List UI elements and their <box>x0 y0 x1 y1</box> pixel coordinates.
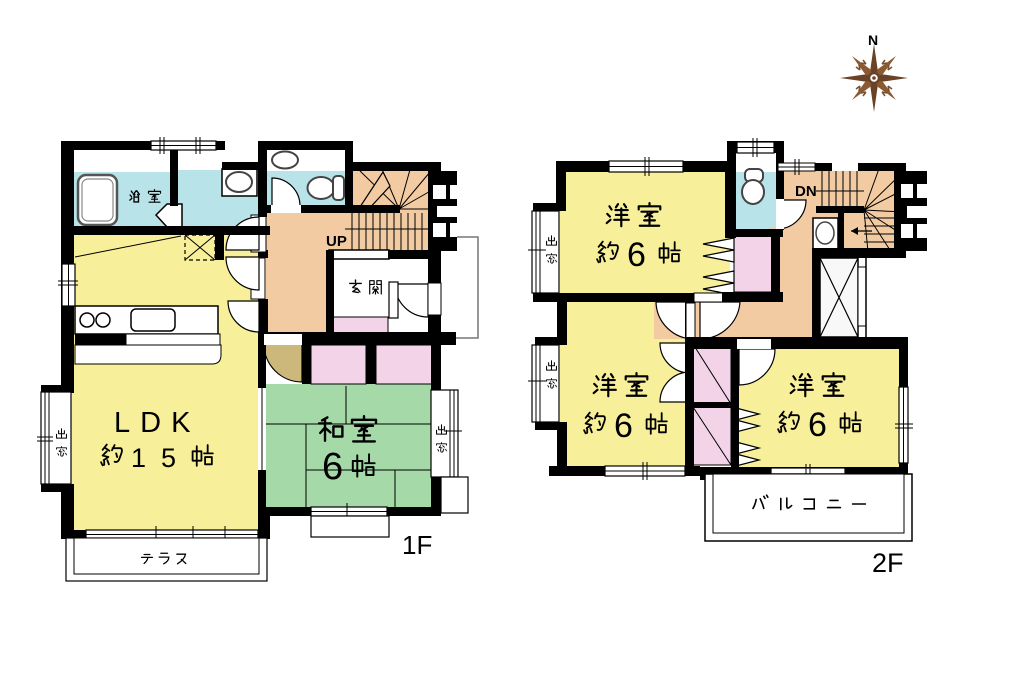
svg-text:2F: 2F <box>872 548 904 578</box>
svg-text:LDK: LDK <box>114 407 200 439</box>
svg-text:6: 6 <box>627 236 646 274</box>
svg-text:6: 6 <box>322 446 343 488</box>
svg-text:1F: 1F <box>402 530 432 560</box>
svg-text:UP: UP <box>326 233 347 250</box>
svg-text:6: 6 <box>614 407 633 445</box>
svg-text:DN: DN <box>795 183 817 200</box>
svg-text:6: 6 <box>808 406 827 444</box>
svg-text:N: N <box>868 32 878 48</box>
svg-text:15: 15 <box>131 443 191 473</box>
